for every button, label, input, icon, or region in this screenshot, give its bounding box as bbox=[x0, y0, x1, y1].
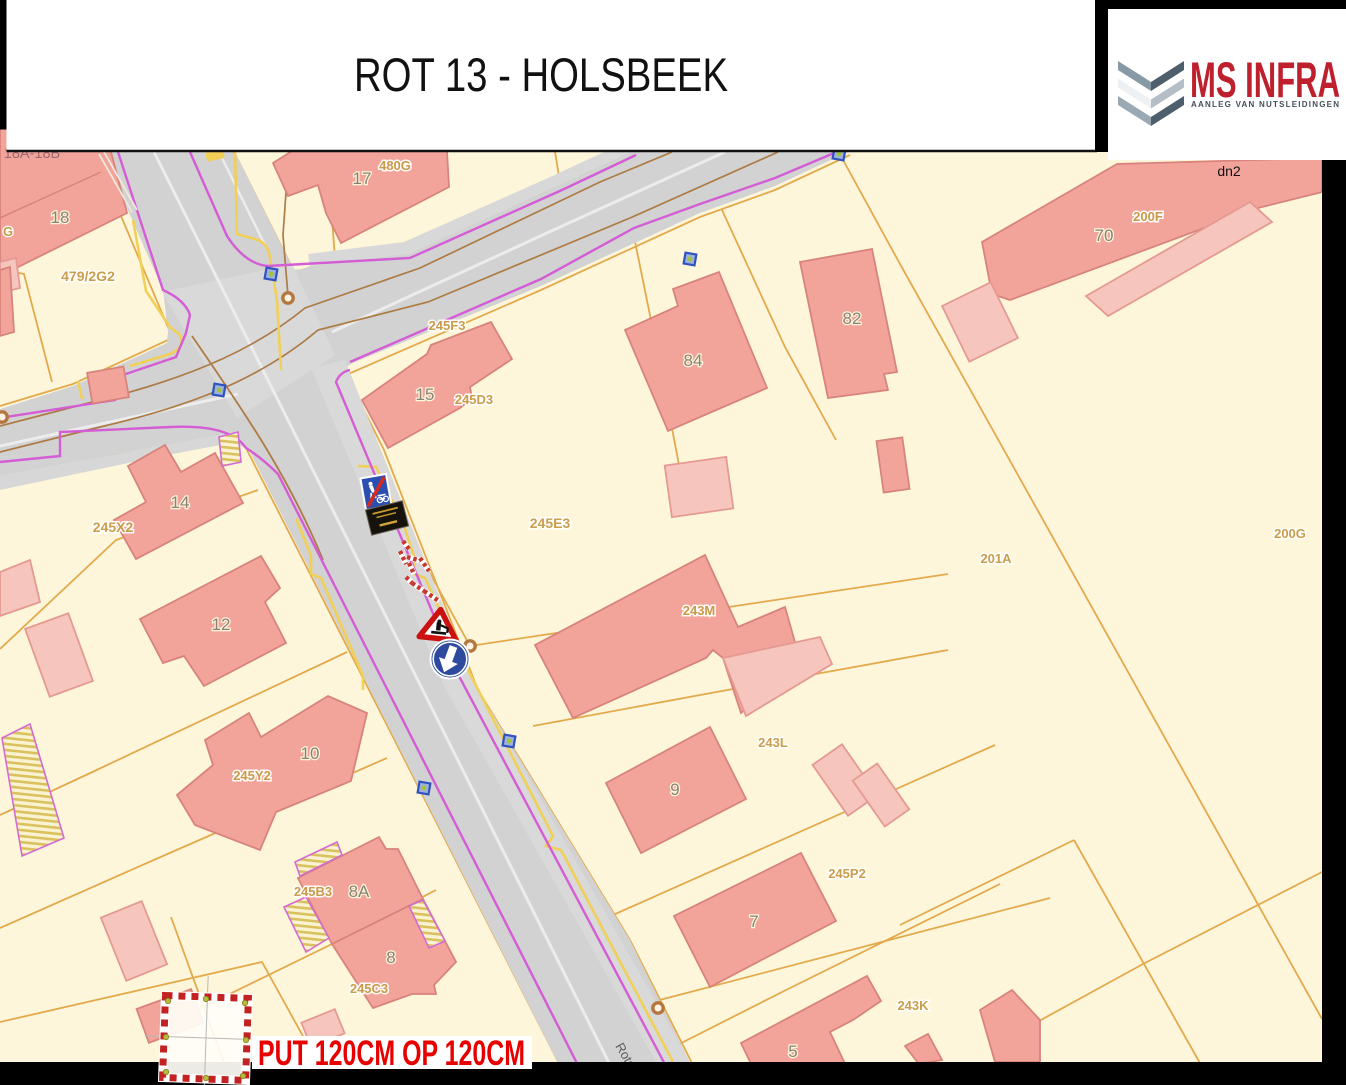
svg-text:245E3: 245E3 bbox=[530, 515, 571, 531]
svg-text:200G: 200G bbox=[1274, 526, 1306, 541]
svg-text:245X2: 245X2 bbox=[93, 519, 134, 535]
svg-text:200F: 200F bbox=[1133, 209, 1163, 224]
svg-text:479/2G2: 479/2G2 bbox=[61, 268, 115, 284]
svg-text:10: 10 bbox=[301, 744, 320, 763]
svg-text:245F3: 245F3 bbox=[429, 318, 466, 333]
svg-text:8A: 8A bbox=[349, 882, 370, 901]
svg-text:ROT 13 - HOLSBEEK: ROT 13 - HOLSBEEK bbox=[354, 48, 728, 101]
svg-text:PUT 120CM OP 120CM: PUT 120CM OP 120CM bbox=[258, 1034, 525, 1073]
svg-text:14: 14 bbox=[171, 493, 190, 512]
svg-text:243M: 243M bbox=[683, 603, 716, 618]
svg-text:dn2: dn2 bbox=[1217, 163, 1241, 179]
svg-text:245P2: 245P2 bbox=[828, 866, 866, 881]
svg-text:243L: 243L bbox=[758, 735, 788, 750]
svg-text:245B3: 245B3 bbox=[294, 884, 332, 899]
svg-text:9: 9 bbox=[670, 780, 679, 799]
svg-text:17: 17 bbox=[353, 169, 372, 188]
svg-text:5: 5 bbox=[788, 1042, 797, 1061]
svg-text:15: 15 bbox=[416, 385, 435, 404]
svg-text:245Y2: 245Y2 bbox=[233, 768, 271, 783]
svg-text:84: 84 bbox=[684, 351, 703, 370]
svg-text:82: 82 bbox=[843, 309, 862, 328]
svg-text:243K: 243K bbox=[897, 998, 929, 1013]
svg-text:201A: 201A bbox=[980, 551, 1012, 566]
svg-text:70: 70 bbox=[1095, 226, 1114, 245]
svg-text:18: 18 bbox=[51, 208, 70, 227]
svg-text:AANLEG VAN NUTSLEIDINGEN: AANLEG VAN NUTSLEIDINGEN bbox=[1191, 100, 1339, 109]
svg-text:480G: 480G bbox=[379, 158, 411, 173]
svg-text:G: G bbox=[3, 224, 13, 239]
svg-text:12: 12 bbox=[212, 615, 231, 634]
svg-text:245D3: 245D3 bbox=[455, 392, 493, 407]
svg-text:8: 8 bbox=[386, 948, 395, 967]
svg-text:7: 7 bbox=[749, 912, 758, 931]
svg-text:245C3: 245C3 bbox=[350, 981, 388, 996]
